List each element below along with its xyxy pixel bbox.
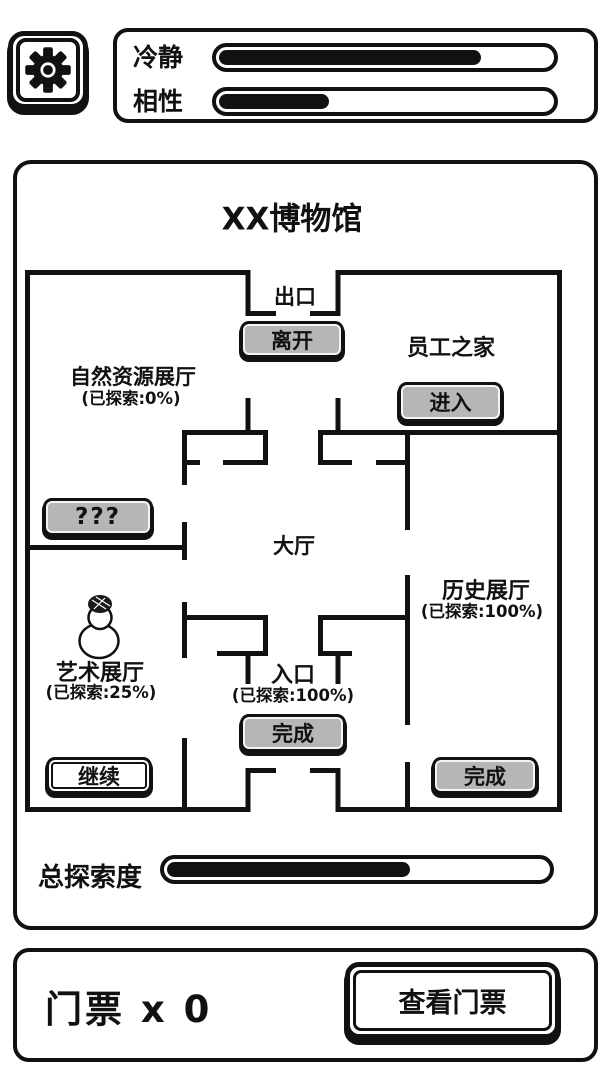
total-exploration-bar	[160, 855, 554, 884]
history-hall-finish-button[interactable]: 完成	[432, 757, 538, 794]
calm-stat-label: 冷静	[133, 44, 183, 71]
calm-progress-fill	[219, 50, 481, 65]
player-character	[80, 595, 119, 658]
staff-home-label: 员工之家	[407, 330, 495, 362]
game-screen: 冷静 相性 XX博物馆 出口 员工之家 自然资源展厅 (已探索:0%) 大厅 历…	[0, 0, 608, 1080]
settings-button-inner	[16, 38, 80, 102]
enter-staff-home-button[interactable]: 进入	[398, 382, 503, 422]
mystery-room-button[interactable]: ???	[43, 498, 153, 536]
total-exploration-fill	[167, 862, 410, 877]
exit-label: 出口	[274, 281, 316, 311]
view-tickets-button-inner: 查看门票	[353, 970, 552, 1031]
history-hall-explored-percent: (已探索:100%)	[421, 598, 543, 622]
main-hall-label: 大厅	[273, 530, 315, 560]
view-tickets-button[interactable]: 查看门票	[345, 962, 560, 1039]
total-exploration-label: 总探索度	[38, 857, 142, 894]
settings-button[interactable]	[8, 31, 88, 109]
calm-progress-bar	[212, 43, 558, 72]
gear-icon	[22, 44, 74, 96]
natural-hall-explored-percent: (已探索:0%)	[81, 385, 180, 409]
leave-button[interactable]: 离开	[240, 321, 344, 358]
tickets-count-label: 门票 x 0	[45, 979, 212, 1033]
affinity-progress-fill	[219, 94, 329, 109]
affinity-stat-label: 相性	[133, 88, 183, 115]
art-hall-continue-button[interactable]: 继续	[46, 757, 152, 794]
character-hat	[88, 595, 112, 613]
affinity-progress-bar	[212, 87, 558, 116]
art-hall-explored-percent: (已探索:25%)	[46, 679, 157, 703]
entrance-explored-percent: (已探索:100%)	[232, 682, 354, 706]
museum-title: XX博物馆	[222, 194, 363, 239]
entrance-finish-button[interactable]: 完成	[240, 714, 346, 752]
